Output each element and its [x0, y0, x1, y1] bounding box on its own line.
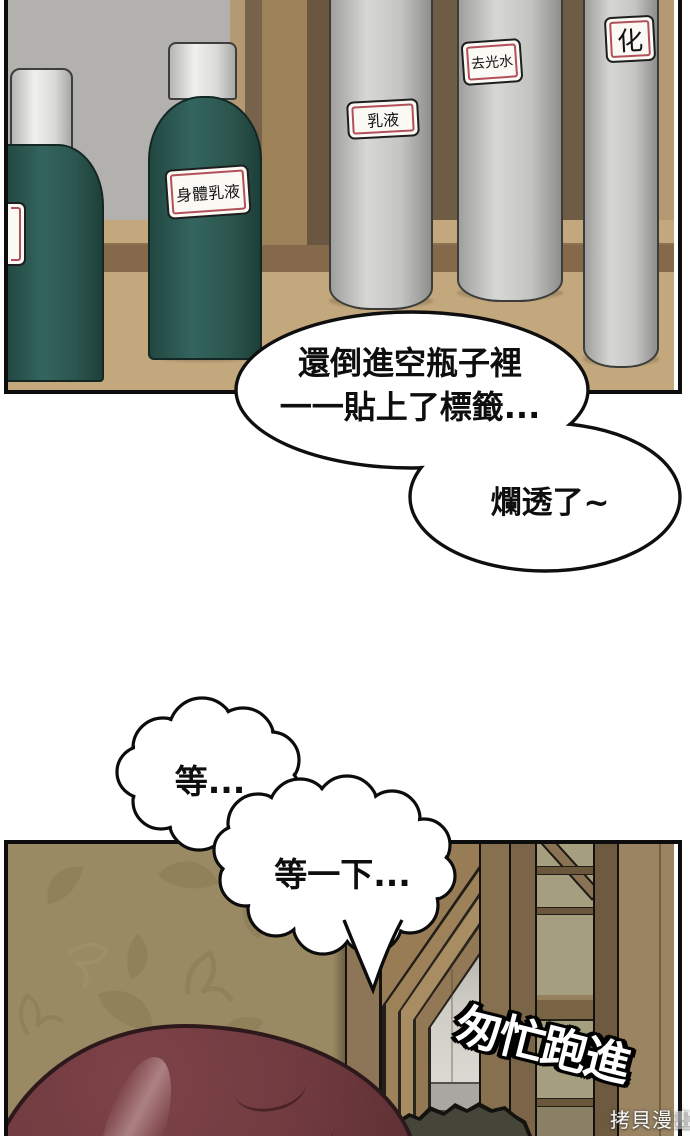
cloud-2-text: 等一下... [235, 848, 450, 896]
bottle-label: 身體乳液 [164, 164, 251, 220]
bottle-label-text: 化 [616, 20, 644, 58]
door-post-2 [511, 844, 537, 1136]
bottle-label-text: 身體乳液 [175, 178, 241, 206]
hallway-bar [537, 907, 593, 915]
cloud-tail [344, 920, 402, 990]
speech-bubble-2-text: 爛透了~ [450, 486, 650, 520]
hallway-bar [537, 866, 593, 875]
comic-page: 身體乳液 乳液 去光水 化 [0, 0, 690, 1136]
bubble1-line1: 還倒進空瓶子裡 [245, 341, 575, 385]
hallway-opening [537, 844, 593, 1136]
speech-bubble-1-text: 還倒進空瓶子裡 一一貼上了標籤... [245, 341, 575, 429]
bottle-label-text: 去光水 [470, 51, 513, 74]
wood-strip [262, 0, 307, 245]
bottle-label-text: 乳液 [366, 106, 399, 132]
bottle-gray-lotion [329, 0, 433, 310]
watermark: 拷貝漫畫 [610, 1104, 690, 1133]
hallway-lower [537, 1107, 593, 1136]
hair-highlight [84, 1049, 186, 1136]
bottle-cap [10, 68, 73, 152]
bottle-label: 乳液 [346, 98, 420, 140]
cloud-bubbles [95, 685, 490, 1000]
cloud-1-text: 等... [140, 755, 280, 803]
bottle-label: 去光水 [461, 38, 524, 86]
bottle-cap [168, 42, 237, 100]
bottle-label: 化 [604, 15, 656, 64]
bubble1-line2: 一一貼上了標籤... [245, 385, 575, 429]
hallway-bar [537, 1098, 593, 1107]
bottle-label-cut [8, 202, 26, 266]
